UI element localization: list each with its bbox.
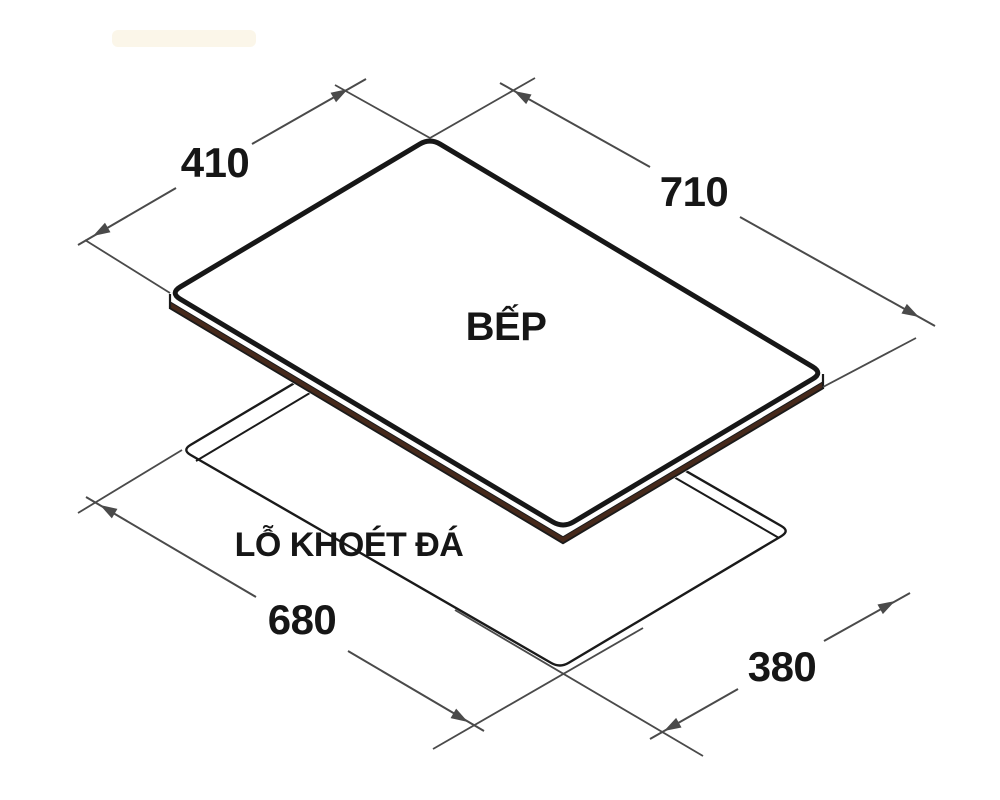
extension-line-cutout-left [78,450,182,513]
dimension-value-cutout-width: 380 [748,646,817,688]
scan-smudge [112,30,256,47]
dimension-value-cooktop-length: 710 [660,171,729,213]
extension-line-left-corner [85,240,170,293]
extension-line-top-left [335,85,430,138]
extension-line-top-right [430,78,535,138]
installation-diagram: 410 710 BẾP LỖ KHOÉT ĐÁ 680 380 [0,0,1000,800]
extension-line-cutout-bottom-left [433,628,643,749]
cooktop-label: BẾP [466,307,547,347]
extension-line-right-corner [823,338,916,387]
diagram-canvas [0,0,1000,800]
dimension-value-cooktop-width: 410 [181,142,250,184]
dimension-value-cutout-length: 680 [268,599,337,641]
stone-cutout-label: LỖ KHOÉT ĐÁ [235,528,464,562]
extension-line-cutout-bottom-right [455,610,703,756]
